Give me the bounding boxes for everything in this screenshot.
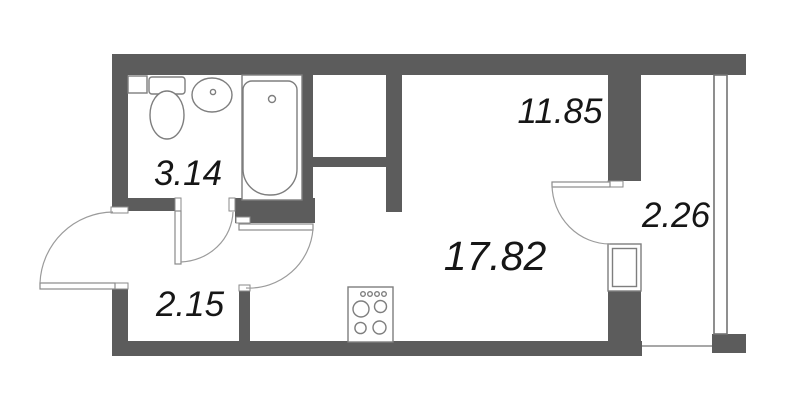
bath-door-jamb-left — [175, 198, 181, 211]
wall-bottom-exterior — [112, 341, 642, 356]
balcony-glazing — [714, 75, 727, 334]
room-door-jamb-top — [236, 217, 250, 223]
balcony-door-leaf-icon — [552, 182, 610, 187]
wall-balcony-bottom-right — [712, 334, 746, 353]
wall-bathtub-right — [301, 75, 313, 200]
entrance-jamb-top — [111, 207, 128, 213]
area-label-hallway: 2.15 — [155, 285, 225, 324]
bathtub-outline — [242, 75, 302, 200]
balcony-window — [608, 244, 641, 291]
wall-hallway-right-stub — [239, 290, 250, 342]
floor-plan-canvas: 3.14 2.15 17.82 11.85 2.26 — [0, 0, 800, 408]
entrance-door-leaf-icon — [40, 283, 115, 289]
wall-top-exterior — [112, 54, 746, 75]
wall-bathroom-bottom-left — [128, 198, 175, 211]
bathroom-door-leaf-icon — [175, 211, 181, 264]
shelf-icon — [128, 76, 147, 93]
floor-plan: 3.14 2.15 17.82 11.85 2.26 — [0, 0, 800, 408]
area-label-room-zone: 11.85 — [518, 92, 604, 131]
wall-balcony-lower — [608, 291, 641, 353]
room-door-leaf-icon — [239, 224, 313, 230]
wall-shaft-right — [386, 75, 402, 212]
bath-door-jamb-right — [229, 198, 235, 211]
wall-balcony-upper — [608, 75, 641, 181]
area-label-bathroom: 3.14 — [154, 154, 222, 193]
toilet-bowl-icon — [150, 91, 184, 139]
wall-left-upper — [112, 54, 128, 210]
area-label-living-kitchen: 17.82 — [444, 233, 547, 279]
area-label-balcony: 2.26 — [641, 196, 711, 235]
kitchen-fixtures — [348, 287, 393, 342]
